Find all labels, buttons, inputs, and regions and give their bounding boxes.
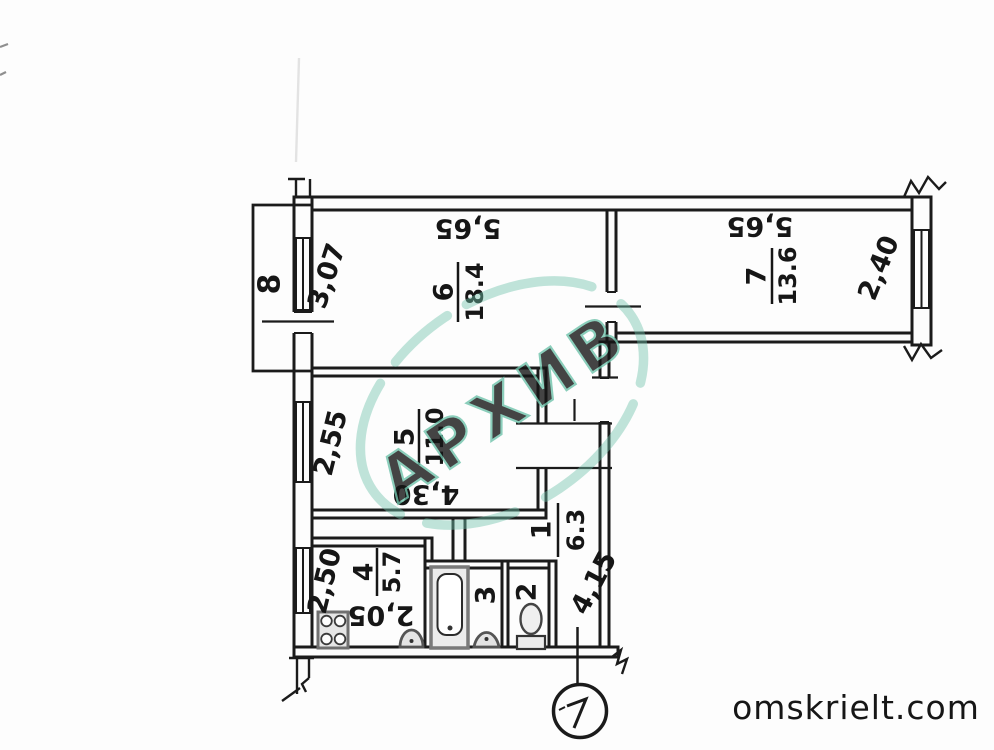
floorplan-drawing: 6 18.4 7 13.6 5 11.0 4 5.7 1 6.3 3 2 8 5… [0,0,994,750]
room-3-number: 3 [471,586,502,605]
toilet-tank-icon [517,636,545,649]
dim-room7-depth: 2,40 [852,231,906,304]
break-right-bottom-zigzag [904,344,942,360]
stove-burner [335,616,346,627]
room-7-number: 7 [742,267,773,286]
room-2-number: 2 [512,583,543,602]
archive-stamp-watermark: АРХИВ [315,230,689,575]
room-4-number: 4 [349,563,380,582]
dim-kitchen-width: 2,05 [348,600,415,631]
break-right-top-zigzag [904,177,946,197]
scan-streak [296,58,299,162]
room-1-number: 1 [527,521,558,540]
wall-room7-bottom [607,333,912,342]
wall-kitchen-top [312,538,430,546]
room-6-label: 6 18.4 [429,262,490,322]
bathtub-drain [448,626,453,631]
room-1-area: 6.3 [562,509,590,552]
room-7-label: 7 13.6 [742,246,803,305]
stove-burner [321,634,332,645]
room-8-number: 8 [253,274,288,295]
stove-burner [335,634,346,645]
break-bottom-left-slash [282,688,300,701]
scan-artifacts [0,44,299,162]
kitchen-sink-drain [410,639,414,643]
room-4-label: 4 5.7 [349,548,407,596]
dim-hall-length: 4,15 [565,546,624,619]
scan-speck [0,72,6,75]
toilet-bowl-icon [521,604,542,634]
opening-room5 [536,424,548,467]
dim-room6-width: 5,65 [435,213,502,244]
bath-sink-drain [485,637,489,641]
room-7-area: 13.6 [774,246,802,305]
room-4-area: 5.7 [378,551,406,594]
wall-partition-2-3 [502,561,508,650]
wall-top [294,197,931,210]
dim-room5-depth: 2,55 [308,407,354,479]
room-6-number: 6 [429,283,460,302]
dim-room7-width: 5,65 [727,211,794,242]
site-watermark-text: omskrielt.com [732,688,980,727]
scan-speck [0,44,8,47]
break-bottom-left-zigzag [302,678,309,692]
kitchen-sink-icon [400,630,423,647]
wall-bath-right [549,561,556,650]
floorplan-scan-page: 6 18.4 7 13.6 5 11.0 4 5.7 1 6.3 3 2 8 5… [0,0,994,750]
